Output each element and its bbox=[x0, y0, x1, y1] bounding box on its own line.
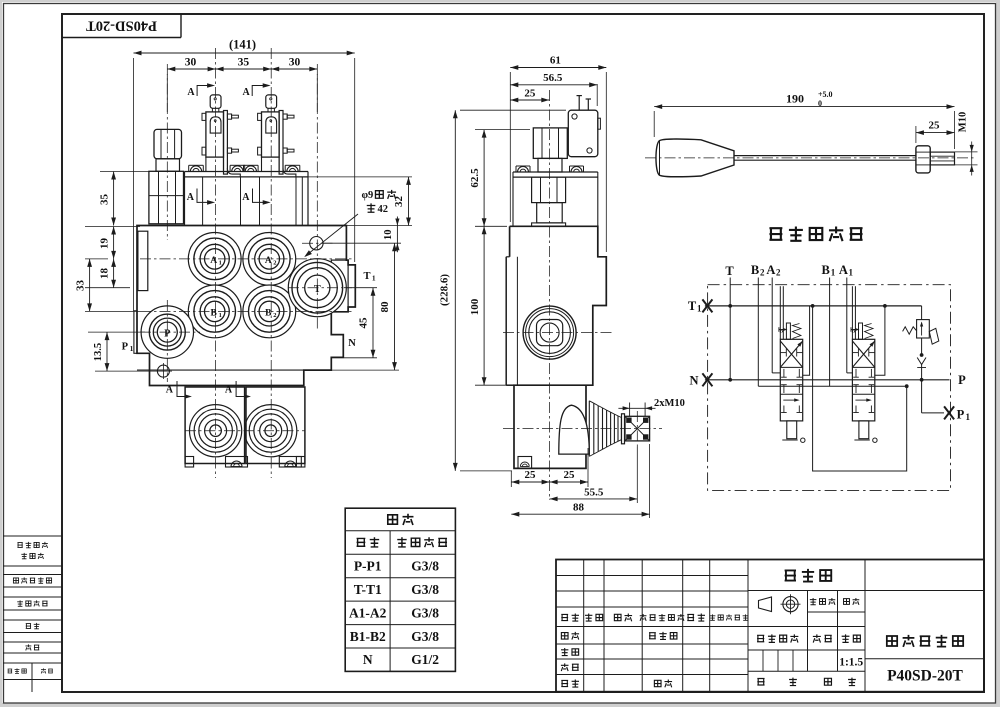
svg-text:G3/8: G3/8 bbox=[411, 605, 439, 620]
svg-text:1: 1 bbox=[966, 412, 971, 422]
svg-text:A: A bbox=[766, 263, 775, 277]
svg-text:A: A bbox=[242, 192, 250, 203]
svg-text:G3/8: G3/8 bbox=[411, 559, 439, 574]
svg-text:P: P bbox=[122, 342, 129, 353]
svg-text:A: A bbox=[166, 385, 174, 396]
svg-text:1: 1 bbox=[848, 268, 853, 278]
svg-text:B: B bbox=[751, 263, 759, 277]
svg-text:13.5: 13.5 bbox=[93, 343, 104, 361]
svg-text:N: N bbox=[689, 374, 698, 388]
svg-text:45: 45 bbox=[358, 317, 370, 329]
svg-text:B: B bbox=[822, 263, 830, 277]
svg-text:80: 80 bbox=[379, 301, 391, 313]
svg-text:G3/8: G3/8 bbox=[411, 582, 439, 597]
svg-text:P: P bbox=[957, 408, 965, 422]
svg-text:25: 25 bbox=[929, 120, 941, 132]
svg-text:35: 35 bbox=[99, 194, 111, 206]
svg-text:25: 25 bbox=[525, 469, 537, 481]
svg-text:25: 25 bbox=[524, 88, 536, 100]
svg-text:B: B bbox=[211, 308, 218, 318]
svg-text:30: 30 bbox=[185, 57, 197, 69]
svg-text:88: 88 bbox=[573, 502, 585, 514]
svg-text:A: A bbox=[187, 87, 195, 98]
svg-text:55.5: 55.5 bbox=[584, 486, 604, 498]
svg-text:G1/2: G1/2 bbox=[411, 652, 439, 667]
svg-text:A: A bbox=[210, 256, 217, 266]
svg-text:61: 61 bbox=[550, 55, 561, 67]
svg-text:N: N bbox=[363, 652, 373, 667]
svg-text:62.5: 62.5 bbox=[469, 168, 481, 188]
svg-text:B1-B2: B1-B2 bbox=[350, 629, 386, 644]
svg-text:19: 19 bbox=[99, 238, 111, 250]
svg-text:P40SD-20T: P40SD-20T bbox=[86, 18, 157, 34]
svg-text:T: T bbox=[688, 299, 697, 313]
svg-text:(141): (141) bbox=[229, 38, 256, 52]
svg-text:A: A bbox=[225, 385, 233, 396]
svg-text:A1-A2: A1-A2 bbox=[349, 605, 387, 620]
svg-text:1: 1 bbox=[219, 312, 222, 319]
svg-text:1: 1 bbox=[130, 344, 134, 353]
svg-text:A: A bbox=[242, 87, 250, 98]
svg-text:T: T bbox=[363, 271, 370, 282]
svg-text:2xM10: 2xM10 bbox=[654, 398, 685, 409]
svg-text:1:1.5: 1:1.5 bbox=[839, 657, 863, 669]
svg-text:25: 25 bbox=[564, 469, 576, 481]
svg-text:190: 190 bbox=[786, 92, 804, 106]
svg-text:P: P bbox=[958, 373, 966, 387]
svg-text:100: 100 bbox=[469, 298, 481, 315]
svg-text:2: 2 bbox=[273, 312, 276, 319]
svg-text:1: 1 bbox=[697, 304, 702, 314]
svg-text:N: N bbox=[348, 338, 356, 349]
svg-text:G3/8: G3/8 bbox=[411, 629, 439, 644]
svg-text:1: 1 bbox=[372, 274, 376, 283]
svg-text:1: 1 bbox=[831, 268, 836, 278]
svg-text:A: A bbox=[839, 263, 848, 277]
svg-text:56.5: 56.5 bbox=[543, 72, 563, 84]
svg-text:10: 10 bbox=[383, 230, 394, 241]
svg-text:18: 18 bbox=[99, 268, 111, 280]
svg-text:2: 2 bbox=[776, 268, 781, 278]
svg-text:2: 2 bbox=[760, 268, 765, 278]
svg-text:+5.0: +5.0 bbox=[818, 90, 833, 99]
svg-text:42: 42 bbox=[378, 204, 389, 215]
svg-text:T-T1: T-T1 bbox=[354, 582, 382, 597]
svg-text:2: 2 bbox=[273, 259, 276, 266]
svg-text:33: 33 bbox=[75, 280, 87, 292]
svg-text:(228.6): (228.6) bbox=[439, 274, 451, 306]
svg-text:A: A bbox=[187, 192, 195, 203]
svg-text:35: 35 bbox=[238, 57, 250, 69]
svg-text:M10: M10 bbox=[958, 112, 969, 132]
svg-text:1: 1 bbox=[219, 259, 222, 266]
svg-text:φ9: φ9 bbox=[362, 190, 374, 201]
svg-text:0: 0 bbox=[818, 99, 822, 108]
svg-text:A: A bbox=[265, 256, 272, 266]
svg-text:30: 30 bbox=[289, 57, 301, 69]
svg-text:P40SD-20T: P40SD-20T bbox=[887, 668, 963, 685]
svg-text:P-P1: P-P1 bbox=[354, 559, 382, 574]
svg-text:T: T bbox=[725, 264, 734, 278]
